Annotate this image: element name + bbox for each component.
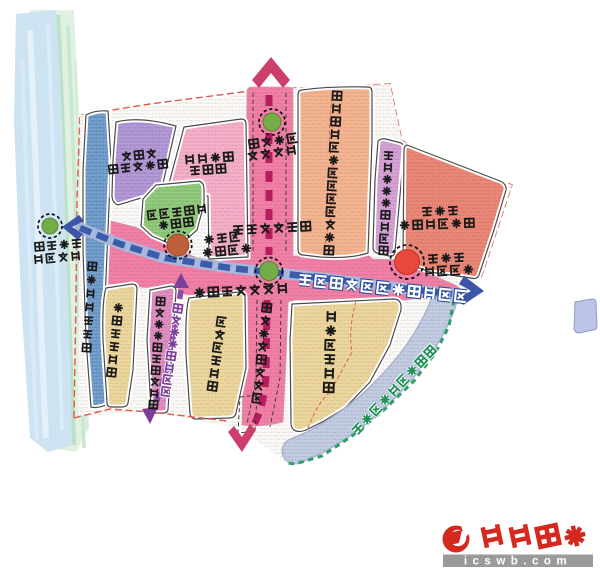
svg-text:icswb.com: icswb.com <box>464 556 572 568</box>
